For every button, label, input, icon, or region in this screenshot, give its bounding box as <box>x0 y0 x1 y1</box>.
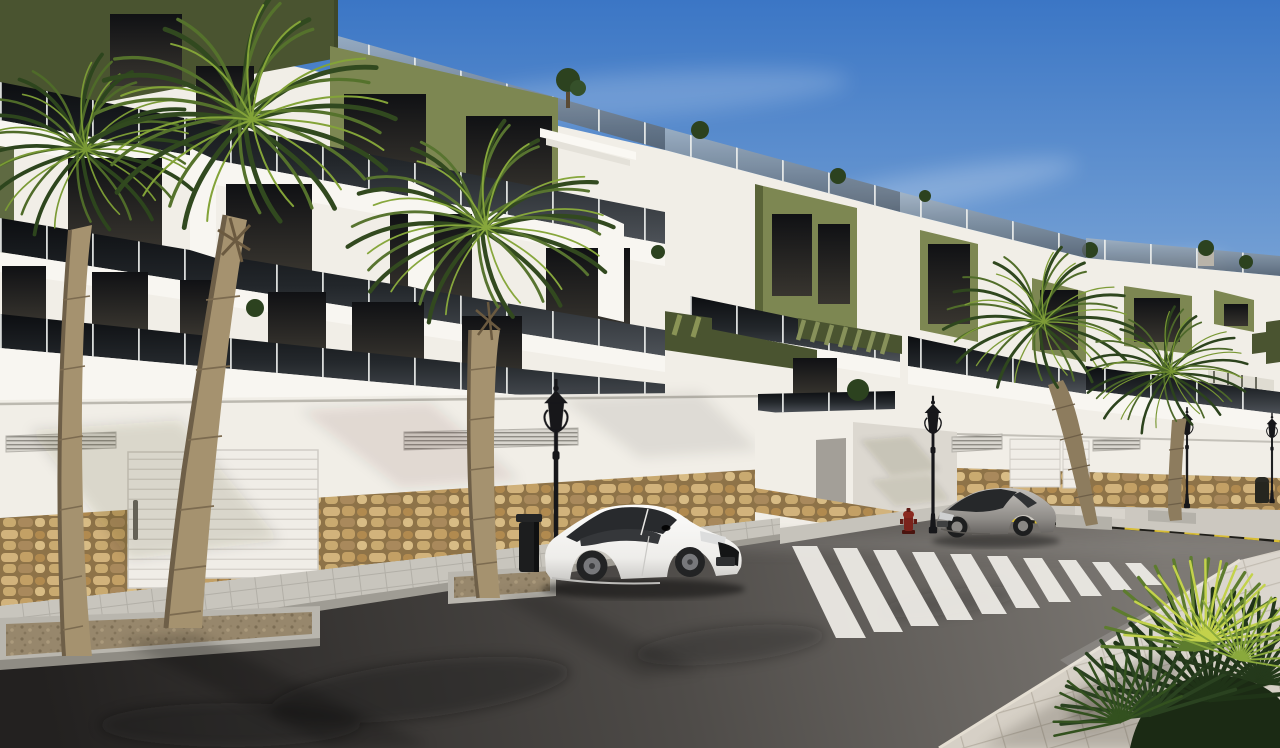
garage-door <box>1010 439 1060 487</box>
vent-grille <box>952 434 1002 452</box>
license-plate <box>937 521 948 527</box>
window <box>772 214 812 296</box>
litter-bin <box>1255 477 1269 503</box>
scene-canvas: Sunny 3D architectural render of a moder… <box>0 0 1280 748</box>
sliding-door <box>92 272 148 330</box>
window <box>818 224 850 304</box>
vent-grille <box>1093 438 1140 451</box>
license-plate <box>716 557 735 566</box>
window <box>793 358 837 396</box>
pergola <box>1252 330 1280 354</box>
window <box>1224 304 1248 326</box>
render-viewport: Sunny 3D architectural render of a moder… <box>0 0 1280 748</box>
window <box>1134 298 1180 342</box>
window <box>928 244 970 324</box>
